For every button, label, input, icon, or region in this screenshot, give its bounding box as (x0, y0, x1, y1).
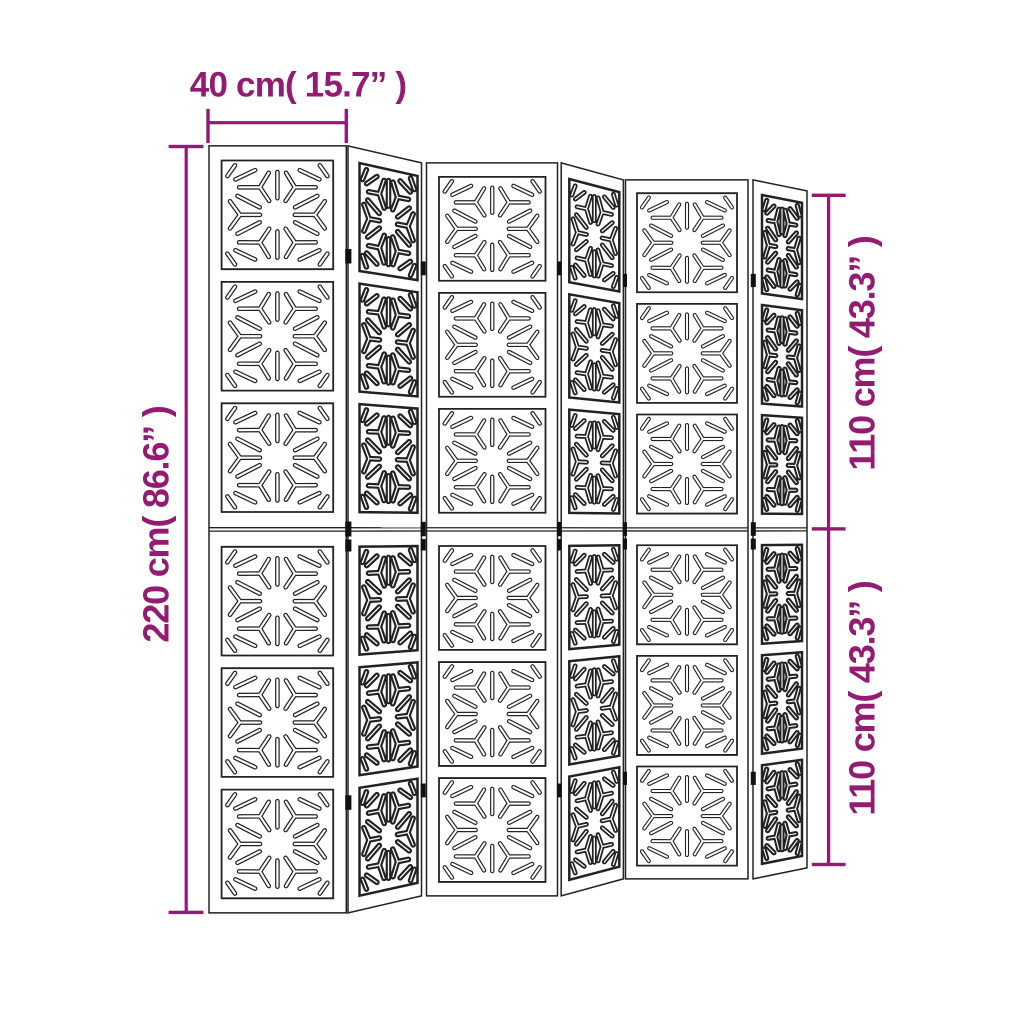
svg-text:110 cm( 43.3” ): 110 cm( 43.3” ) (842, 581, 883, 815)
svg-text:220 cm( 86.6” ): 220 cm( 86.6” ) (136, 406, 177, 642)
svg-text:40 cm( 15.7” ): 40 cm( 15.7” ) (190, 66, 406, 105)
svg-text:110 cm( 43.3” ): 110 cm( 43.3” ) (842, 236, 883, 470)
